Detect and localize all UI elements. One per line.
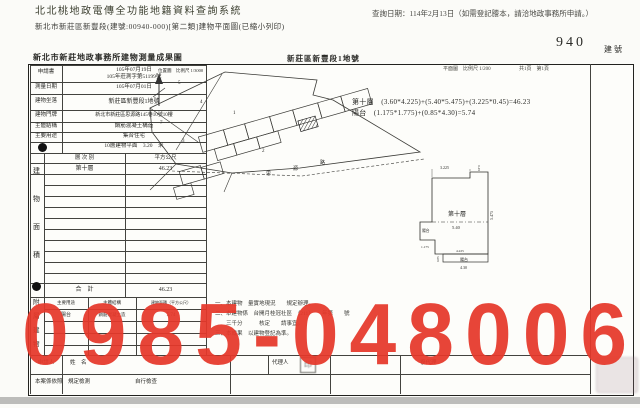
formula-floor: 第十層 (3.60*4.225)+(5.40*5.475)+(3.225*0.4…	[352, 99, 530, 106]
scanned-survey-document: 北北桃地政電傳全功能地籍資料查詢系統 查詢日期：114年2月13日（如需登記謄本…	[0, 0, 640, 408]
building-cluster	[162, 88, 383, 199]
lot-number: 2	[262, 149, 265, 154]
dim-strip-w: 4.30	[460, 265, 467, 270]
dim-right: 5.475	[489, 211, 494, 220]
lot-number: 7	[160, 121, 163, 126]
area-side-char-3: 面	[33, 224, 40, 231]
system-title: 北北桃地政電傳全功能地籍資料查詢系統	[35, 7, 242, 17]
dim-balcony-left-w: 1.175	[421, 245, 429, 249]
lot-number: 4	[200, 100, 203, 105]
phone-watermark: 0985-048006	[22, 290, 640, 377]
dim-notch: 0.45	[477, 165, 481, 171]
building-number-label: 建號	[604, 46, 624, 54]
dim-strip-h: 0.85	[436, 256, 440, 262]
page-edge-band	[0, 397, 640, 404]
area-col1-header: 層 次 別	[44, 156, 125, 162]
floor-plan-sketch: 3.225 0.45 5.475 第十層 5.40 陽台 1.775 1.175…	[418, 162, 518, 282]
info-label-survey-date: 測量日期	[31, 85, 61, 91]
query-date: 查詢日期：114年2月13日（如需登記謄本，請洽地政事務所申請。）	[372, 10, 593, 18]
dim-balcony-left-h: 1.775	[418, 226, 419, 234]
subject-unit-hatched	[298, 116, 318, 132]
lot-number: 1	[233, 111, 236, 116]
plan-scale-label: 平面圖 比例尺 1/200	[443, 67, 491, 72]
north-arrow-icon	[153, 74, 165, 106]
area-side-char-4: 積	[33, 252, 40, 259]
info-label-building-site: 建物坐落	[31, 99, 61, 105]
page-info-label: 共1頁 第1頁	[519, 67, 549, 72]
doc-land-label: 新莊區新豐段1地號	[287, 55, 360, 63]
lot-number: 5	[178, 81, 181, 86]
building-number: 940	[556, 36, 586, 50]
lot-boundary	[150, 72, 420, 173]
dim-top: 3.225	[440, 165, 449, 170]
dim-mid: 5.40	[452, 225, 461, 230]
balcony-left-label: 陽台	[422, 228, 430, 233]
doc-title: 新北市新莊地政事務所建物測量成果圖	[33, 54, 183, 62]
dim-inner-bottom: 4.225	[456, 249, 464, 253]
road-name-char: 源	[293, 165, 298, 172]
area-row-floor: 第十層	[44, 166, 125, 172]
row-marker-dot	[38, 143, 47, 152]
area-side-char-1: 建	[33, 168, 40, 175]
lot-number: 3	[182, 139, 185, 144]
site-plan-map: 位置圖 比例尺 1/3000	[140, 64, 440, 244]
road-name-char: 路	[320, 159, 325, 166]
formula-balcony: 陽台 (1.175*1.775)+(0.85*4.30)=5.74	[352, 110, 475, 117]
info-label-application: 申請書	[31, 70, 61, 76]
balcony-bottom-label: 陽台	[460, 256, 468, 262]
document-subtitle: 新北市新莊區新豐段(建號:00940-000)[第二類]建物平面圖(已縮小列印)	[35, 23, 285, 31]
location-scale-label: 位置圖 比例尺 1/3000	[158, 67, 204, 74]
info-label-door-plate: 建物門牌	[31, 113, 61, 119]
info-label-usage: 主要用途	[31, 134, 61, 140]
unit-label: 第十層	[448, 210, 466, 218]
info-label-structure: 主體結構	[31, 124, 61, 130]
road-name-char: 思	[266, 171, 271, 177]
area-side-char-2: 物	[33, 196, 40, 203]
